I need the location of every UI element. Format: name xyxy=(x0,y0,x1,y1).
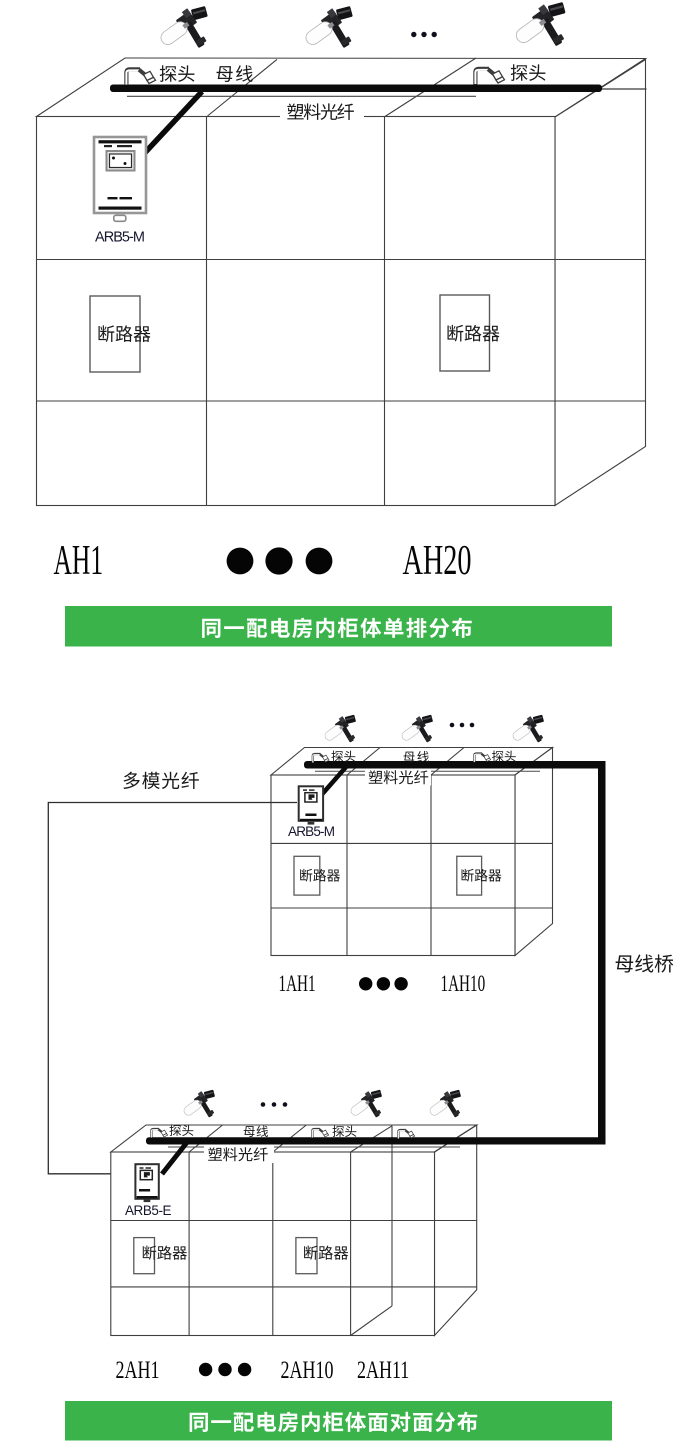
svg-text:1AH1: 1AH1 xyxy=(279,972,316,997)
svg-text:2AH10: 2AH10 xyxy=(281,1356,334,1384)
svg-text:AH20: AH20 xyxy=(403,536,472,583)
svg-text:AH1: AH1 xyxy=(54,536,104,583)
svg-text:1AH10: 1AH10 xyxy=(441,972,486,997)
svg-text:ARB5-M: ARB5-M xyxy=(288,824,335,839)
svg-text:ARB5-E: ARB5-E xyxy=(125,1203,172,1218)
svg-text:2AH11: 2AH11 xyxy=(357,1356,409,1384)
svg-text:ARB5-M: ARB5-M xyxy=(95,230,145,246)
svg-text:2AH1: 2AH1 xyxy=(116,1356,160,1384)
